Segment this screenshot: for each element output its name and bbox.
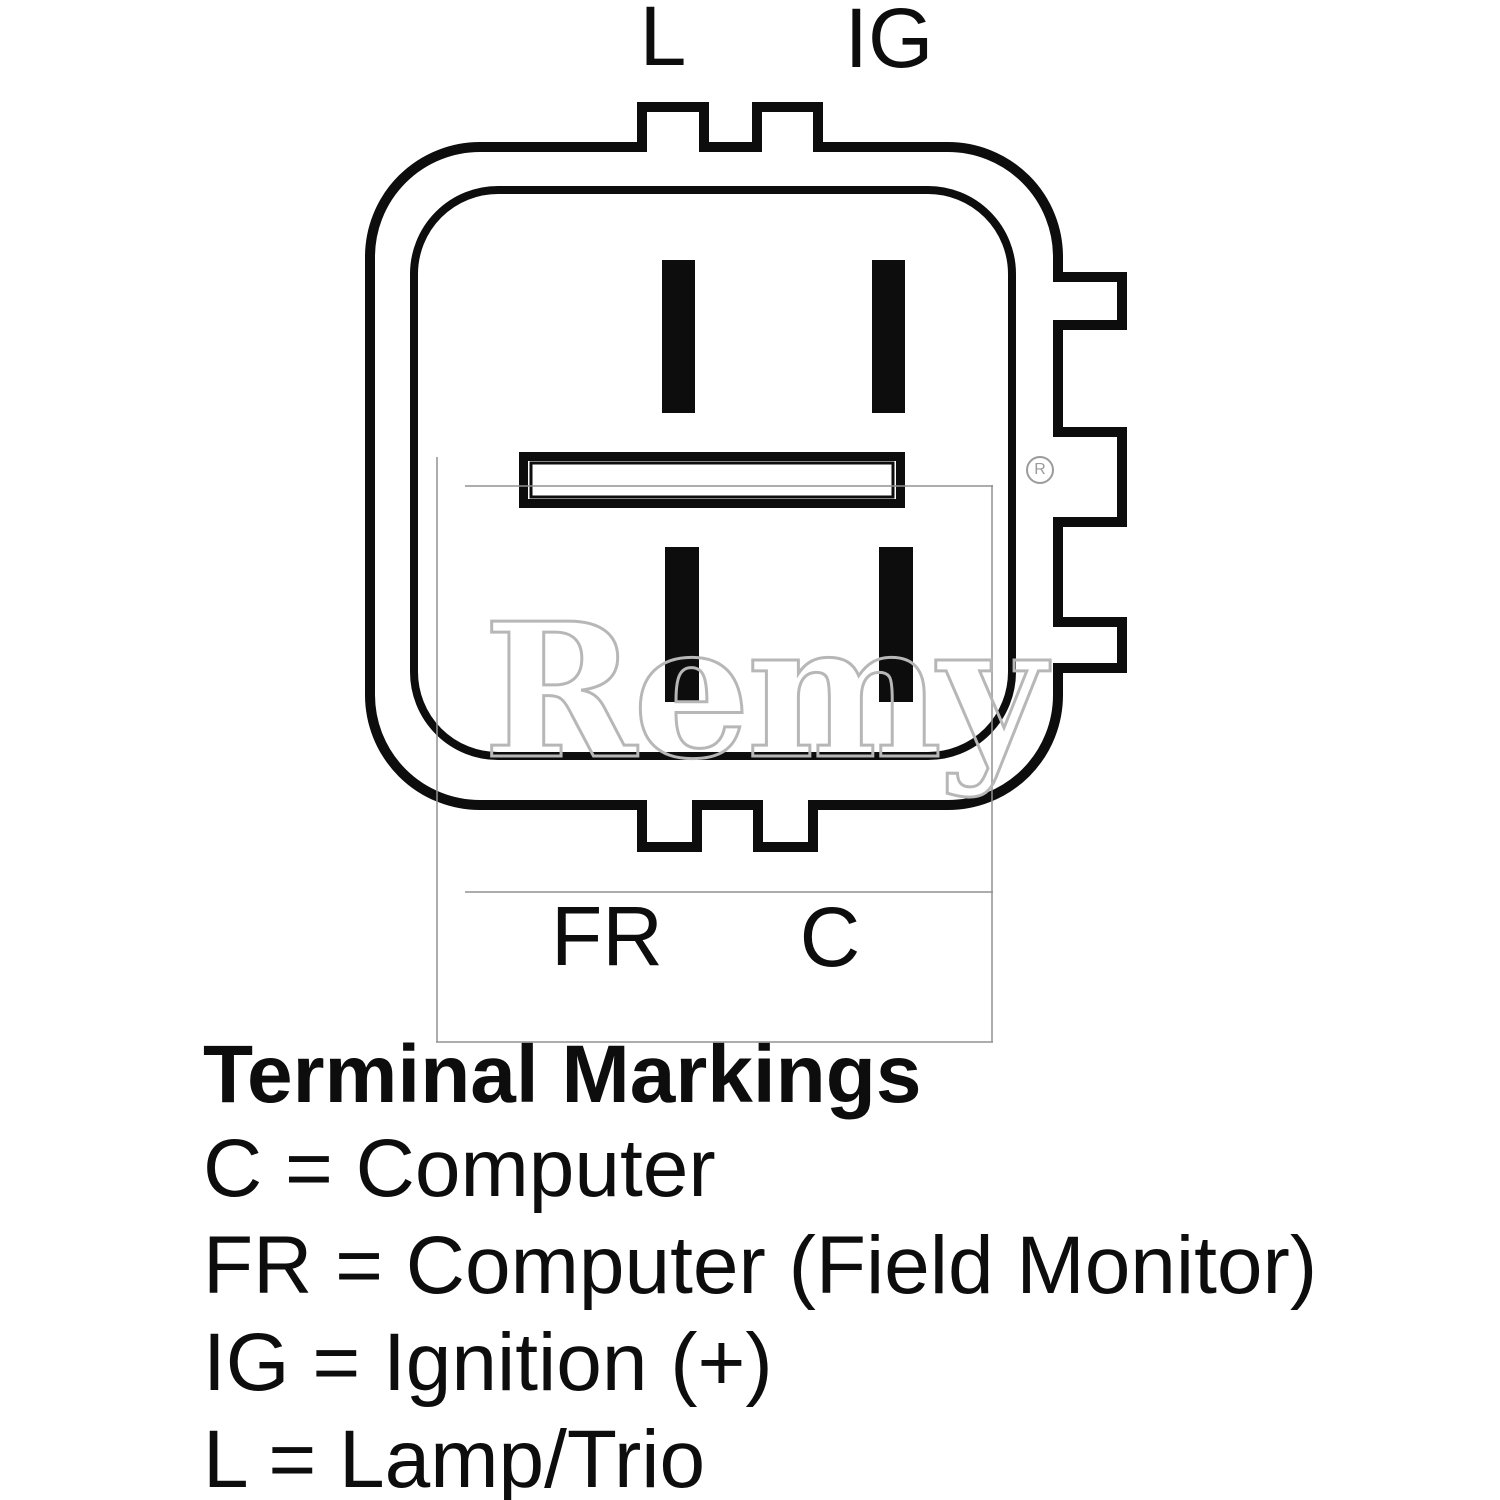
watermark-frame-divider-line <box>465 891 993 893</box>
key-slot-inner <box>531 463 893 497</box>
pin-IG <box>872 260 905 413</box>
pin-C <box>879 547 913 702</box>
watermark-frame-bottom-line <box>436 1041 993 1043</box>
label-terminal-C: C <box>800 890 861 984</box>
alternator-connector-diagram: L IG FR C Remy R Terminal Markings C = C… <box>0 0 1500 1500</box>
legend-entry-l: L = Lamp/Trio <box>203 1415 705 1500</box>
watermark-frame-top-line <box>465 485 993 487</box>
watermark-frame-right-line <box>991 485 993 1042</box>
watermark-frame-left-line <box>436 457 438 1042</box>
legend-entry-c: C = Computer <box>203 1124 716 1214</box>
registered-trademark-icon: R <box>1026 456 1054 484</box>
label-terminal-L: L <box>640 0 687 83</box>
legend-title: Terminal Markings <box>203 1030 921 1120</box>
label-terminal-FR: FR <box>551 889 663 983</box>
label-terminal-IG: IG <box>845 0 934 85</box>
pin-L <box>662 260 695 413</box>
legend-entry-fr: FR = Computer (Field Monitor) <box>203 1221 1317 1311</box>
pin-FR <box>665 547 699 702</box>
legend-entry-ig: IG = Ignition (+) <box>203 1318 773 1408</box>
